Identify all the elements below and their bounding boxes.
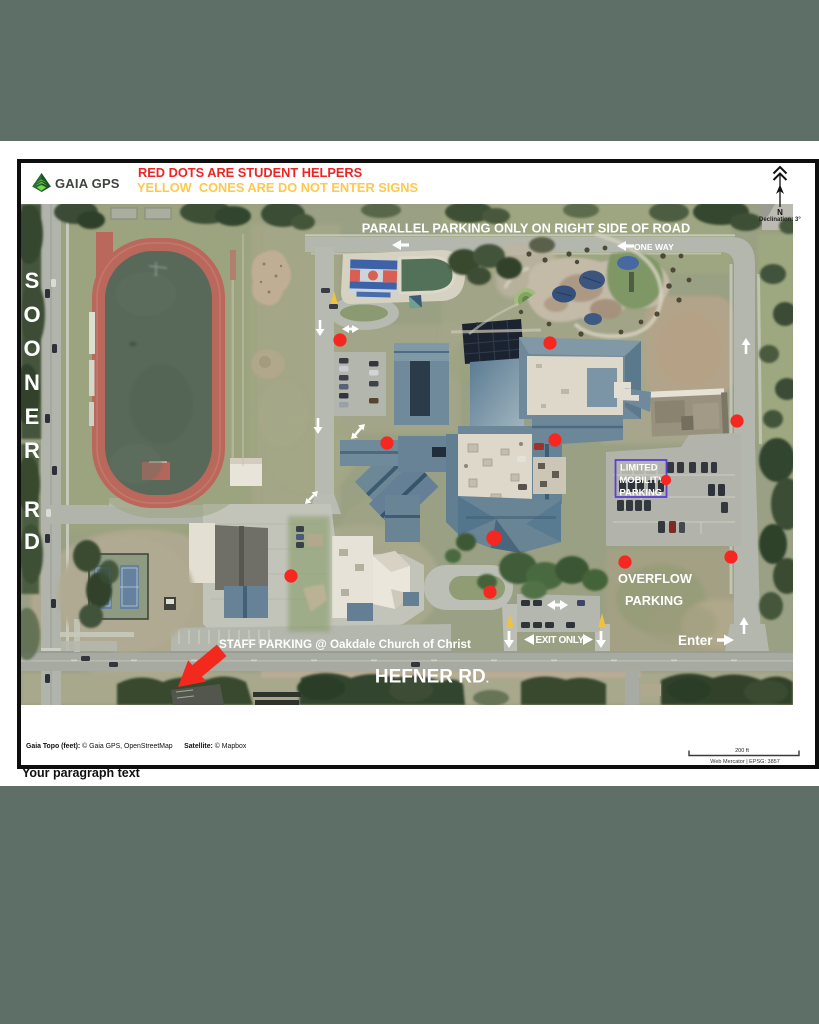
svg-text:N: N — [24, 370, 40, 395]
svg-text:PARKING: PARKING — [625, 593, 683, 608]
svg-text:OVERFLOW: OVERFLOW — [618, 571, 693, 586]
svg-text:E: E — [25, 404, 40, 429]
svg-text:O: O — [23, 302, 40, 327]
svg-text:Web Mercator | EPSG: 3857: Web Mercator | EPSG: 3857 — [710, 759, 780, 764]
svg-text:R: R — [24, 497, 40, 522]
svg-text:PARALLEL PARKING ONLY ON RIGHT: PARALLEL PARKING ONLY ON RIGHT SIDE OF R… — [362, 221, 690, 236]
svg-text:R: R — [24, 438, 40, 463]
svg-text:Enter: Enter — [678, 633, 713, 648]
svg-text:STAFF PARKING @ Oakdale Church: STAFF PARKING @ Oakdale Church of Christ — [219, 638, 471, 651]
svg-text:ONE WAY: ONE WAY — [634, 242, 674, 252]
svg-text:MOBILITY: MOBILITY — [620, 474, 666, 485]
svg-text:O: O — [23, 336, 40, 361]
svg-text:PARKING: PARKING — [620, 487, 663, 498]
svg-text:HEFNER RD.: HEFNER RD. — [375, 667, 489, 688]
svg-text:D: D — [24, 529, 40, 554]
svg-text:LIMITED: LIMITED — [620, 462, 658, 473]
svg-text:200 ft: 200 ft — [735, 748, 749, 754]
svg-text:S: S — [25, 268, 40, 293]
svg-text:EXIT ONLY: EXIT ONLY — [536, 635, 585, 646]
